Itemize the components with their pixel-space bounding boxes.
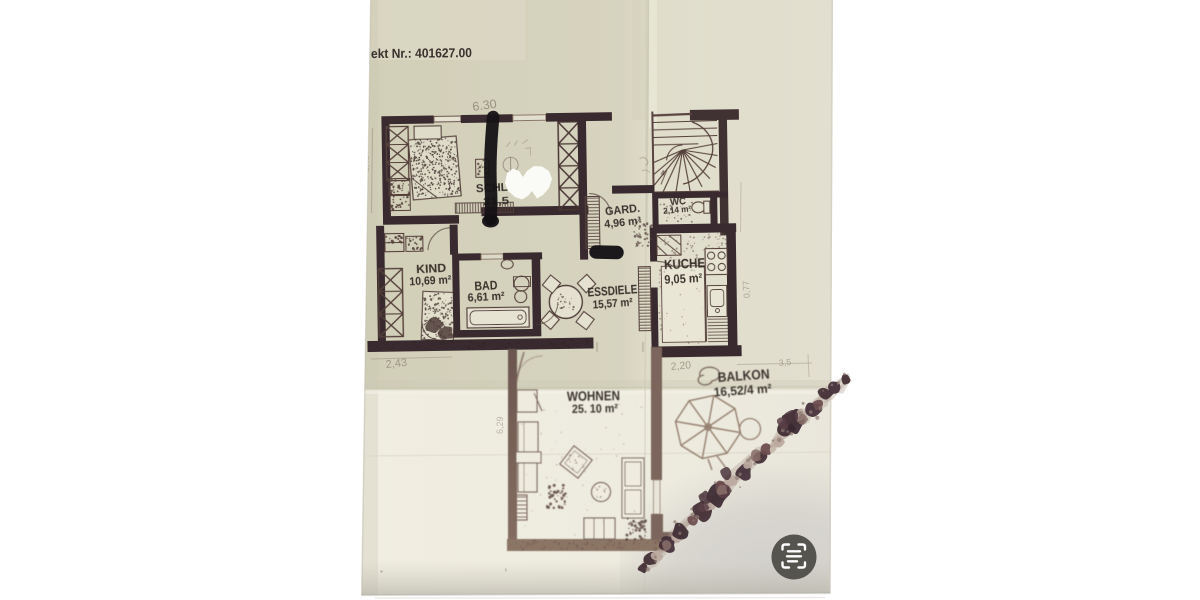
svg-text:,: , xyxy=(504,558,508,573)
svg-text:9,05 m²: 9,05 m² xyxy=(664,271,703,287)
svg-text:6,61 m²: 6,61 m² xyxy=(467,291,505,305)
svg-text:2,43: 2,43 xyxy=(385,357,408,371)
svg-text:KUCHE: KUCHE xyxy=(664,255,706,272)
svg-text:10,69 m²: 10,69 m² xyxy=(409,274,452,288)
svg-text:4: 4 xyxy=(661,170,665,177)
svg-text:2,20: 2,20 xyxy=(670,359,692,373)
svg-text:0,77: 0,77 xyxy=(741,280,752,298)
svg-text:ekt Nr.: 401627.00: ekt Nr.: 401627.00 xyxy=(371,45,472,61)
svg-text:25. 10 m²: 25. 10 m² xyxy=(572,401,618,416)
svg-text:6,29: 6,29 xyxy=(495,416,505,434)
svg-text:3,5: 3,5 xyxy=(778,357,791,368)
